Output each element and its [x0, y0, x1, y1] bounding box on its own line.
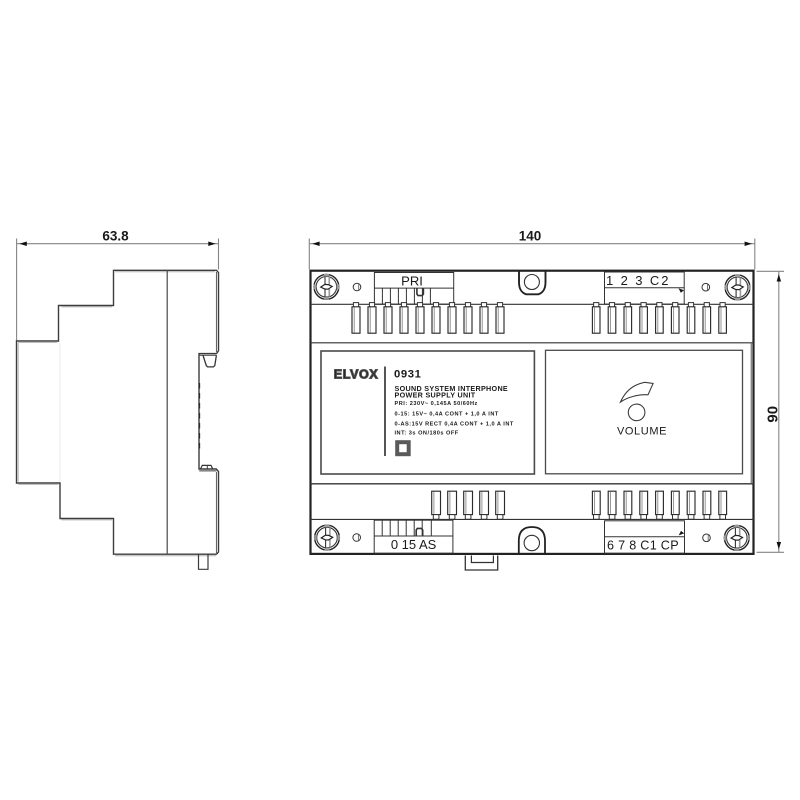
- svg-text:POWER SUPPLY UNIT: POWER SUPPLY UNIT: [395, 390, 476, 399]
- svg-text:PRI: 230V~ 0,145A 50/60Hz: PRI: 230V~ 0,145A 50/60Hz: [395, 401, 478, 407]
- svg-text:63.8: 63.8: [102, 229, 129, 244]
- svg-text:INT: 3s ON/180s OFF: INT: 3s ON/180s OFF: [395, 431, 459, 437]
- svg-text:1 2 3 C2: 1 2 3 C2: [606, 273, 670, 288]
- svg-text:0-15: 15V~ 0,4A CONT + 1,0 A: 0-15: 15V~ 0,4A CONT + 1,0 A INT: [395, 412, 499, 418]
- svg-text:0931: 0931: [394, 369, 422, 381]
- svg-text:140: 140: [519, 229, 542, 244]
- svg-text:ELVOX: ELVOX: [334, 367, 379, 381]
- svg-text:VOLUME: VOLUME: [617, 425, 667, 437]
- svg-text:90: 90: [764, 406, 781, 423]
- svg-text:6 7 8 C1 CP: 6 7 8 C1 CP: [607, 539, 679, 553]
- svg-text:0 15 AS: 0 15 AS: [391, 537, 437, 552]
- svg-text:PRI: PRI: [401, 274, 423, 289]
- svg-text:0-AS:15V RECT 0,4A CONT + 1,: 0-AS:15V RECT 0,4A CONT + 1,0 A INT: [395, 421, 514, 427]
